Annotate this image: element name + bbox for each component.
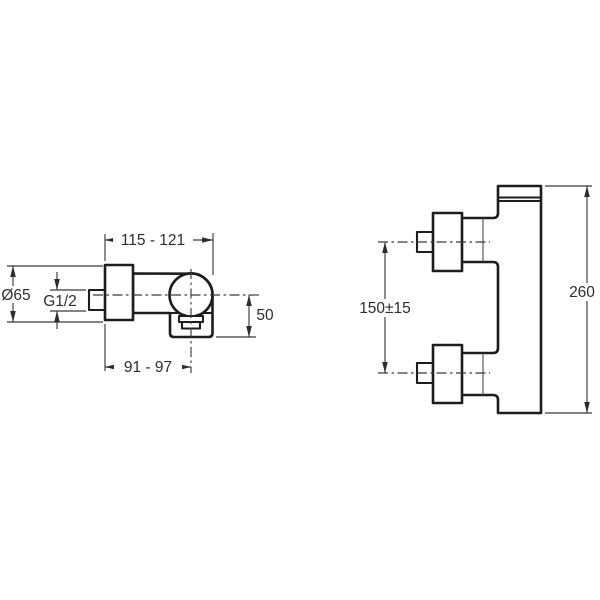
arrowhead-down	[54, 279, 60, 290]
arrowhead-down	[10, 311, 16, 322]
dim-overall-height: 260	[545, 186, 600, 413]
arrowhead-down	[246, 326, 252, 337]
arrowhead-up	[584, 186, 590, 197]
dim-outlet-drop: 50	[216, 295, 274, 337]
mixer-dimension-diagram: 115 - 121 Ø65 G1/2 50	[0, 0, 600, 600]
dim-label-thread-size: G1/2	[43, 293, 77, 310]
front-view: 150±15 260	[350, 186, 600, 413]
side-wall-flange	[105, 265, 133, 320]
dim-label-inlet-spacing: 150±15	[359, 300, 411, 317]
arrowhead-down	[382, 362, 388, 373]
arrowhead-right	[202, 237, 213, 243]
front-body-mid-edge	[462, 262, 498, 353]
dim-inlet-spacing: 150±15	[350, 242, 420, 373]
dim-thread-size: G1/2	[43, 272, 86, 329]
dim-label-depth-range: 91 - 97	[124, 359, 172, 376]
arrowhead-down	[584, 402, 590, 413]
arrowhead-up	[10, 266, 16, 277]
technical-drawing-page: 115 - 121 Ø65 G1/2 50	[0, 0, 600, 600]
dim-label-outlet-drop: 50	[256, 307, 274, 324]
dim-label-width-range: 115 - 121	[121, 232, 185, 249]
side-inlet-stub	[89, 290, 106, 310]
side-view: 115 - 121 Ø65 G1/2 50	[1, 231, 274, 376]
dim-label-overall-height: 260	[569, 284, 595, 301]
front-lower-flange	[433, 345, 462, 403]
arrowhead-up	[382, 242, 388, 253]
dim-label-flange-diameter: Ø65	[1, 287, 30, 304]
front-body	[462, 186, 541, 413]
arrowhead-up	[54, 311, 60, 322]
arrowhead-up	[246, 295, 252, 306]
